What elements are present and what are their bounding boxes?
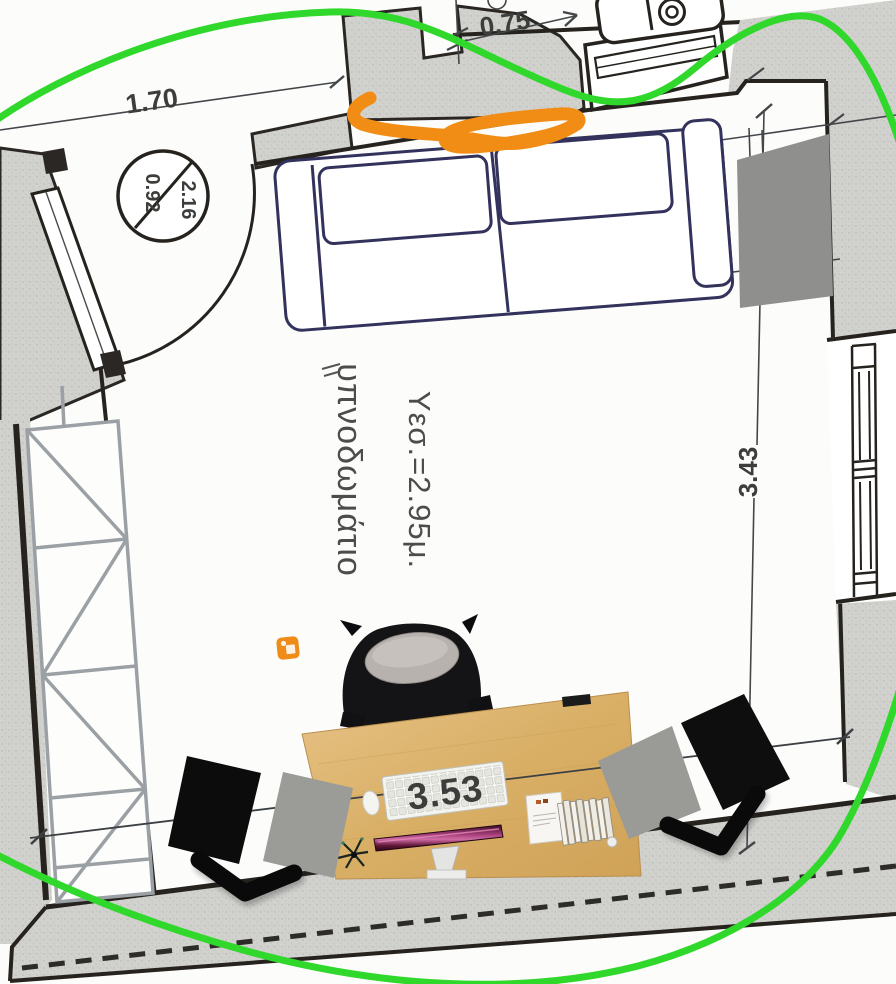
door-width-label: 0.92 bbox=[141, 174, 163, 213]
monitor-base bbox=[427, 870, 466, 879]
room-height-label: Υεσ.=2.95μ. bbox=[402, 391, 437, 569]
door-height-label: 2.16 bbox=[177, 181, 199, 220]
app-watermark-icon bbox=[276, 636, 300, 660]
gray-block-top-right bbox=[737, 134, 833, 308]
window-right bbox=[827, 330, 896, 604]
sofa-cushion-left bbox=[318, 155, 491, 244]
floor-plan-screenshot: 0.92 2.16 υπνοδωμάτιο Υεσ.=2.95μ. 3.43 1… bbox=[0, 0, 896, 984]
door-size-bubble: 0.92 2.16 bbox=[118, 151, 208, 241]
dim-label-right: 3.43 bbox=[733, 447, 763, 498]
room-name-label: υπνοδωμάτιο bbox=[330, 363, 368, 577]
floor-plan-svg: 0.92 2.16 υπνοδωμάτιο Υεσ.=2.95μ. 3.43 1… bbox=[0, 0, 896, 984]
door-jamb-top bbox=[42, 148, 68, 174]
